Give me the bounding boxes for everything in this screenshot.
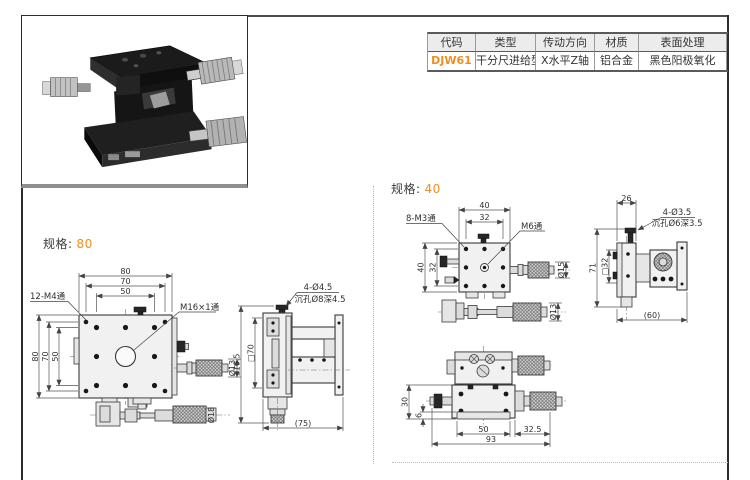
dim-width: 26 xyxy=(621,194,631,203)
dim-top-80: 80 xyxy=(120,268,130,276)
col-header-direction: 传动方向 xyxy=(536,34,595,52)
section-divider-vertical xyxy=(373,186,374,464)
spec40-bottom-view: 30 6 50 32.5 93 xyxy=(398,338,583,450)
label-holes: 4-Ø4.5 xyxy=(304,282,333,293)
label-counterbore: 沉孔Ø8深4.5 xyxy=(294,294,345,305)
dim-height: 116.5 xyxy=(233,354,242,377)
lower-carriage xyxy=(430,385,562,419)
label-mount-holes: 12-M4通 xyxy=(30,291,66,302)
cell-type: 干分尺进给型 xyxy=(476,52,536,70)
dim-left-40: 40 xyxy=(417,262,426,272)
dim-plate: 6 xyxy=(415,413,424,418)
body xyxy=(613,228,687,307)
product-photo-illustration xyxy=(22,16,247,182)
x-micrometer: Ø15 xyxy=(510,262,570,278)
dim-left-70: 70 xyxy=(41,351,50,361)
z-micrometer: Ø13 xyxy=(438,300,566,322)
section-divider-horizontal xyxy=(392,462,728,463)
z-micrometer: Ø18 xyxy=(90,402,230,426)
dim-spindle-dia: Ø15 xyxy=(556,262,566,278)
col-header-material: 材质 xyxy=(595,34,639,52)
catalog-page: 代码 类型 传动方向 材质 表面处理 DJW61 干分尺进给型 X水平Z轴 铝合… xyxy=(0,0,750,480)
dim-left-80: 80 xyxy=(31,351,40,361)
dim-top-70: 70 xyxy=(120,277,130,286)
dim-square: □32 xyxy=(601,258,610,276)
cell-direction: X水平Z轴 xyxy=(536,52,595,70)
spec80-side-view: 4-Ø4.5 沉孔Ø8深4.5 116.5 □70 (75) xyxy=(228,278,370,453)
spec80-heading-value: 80 xyxy=(77,237,93,251)
dim-offset: 32.5 xyxy=(524,425,542,434)
dim-height: 71 xyxy=(589,263,598,273)
dim-height: 30 xyxy=(401,397,410,407)
label-counterbore: 沉孔Ø6深3.5 xyxy=(651,218,702,229)
dim-top-32: 32 xyxy=(479,213,489,222)
spec-table: 代码 类型 传动方向 材质 表面处理 DJW61 干分尺进给型 X水平Z轴 铝合… xyxy=(427,32,728,72)
dim-total-width: 93 xyxy=(486,435,496,444)
spec40-side-view: 26 71 □32 (60) 4-Ø3.5 沉孔Ø6深3.5 xyxy=(583,188,731,333)
label-holes: 4-Ø3.5 xyxy=(663,207,692,218)
dim-left-32: 32 xyxy=(429,262,438,272)
col-header-type: 类型 xyxy=(476,34,536,52)
cell-material: 铝合金 xyxy=(595,52,639,70)
labels: 4-Ø4.5 沉孔Ø8深4.5 xyxy=(286,282,346,306)
cell-finish: 黑色阳极氧化 xyxy=(639,52,727,70)
cell-code: DJW61 xyxy=(428,52,476,70)
dim-depth: (60) xyxy=(644,311,660,320)
product-photo xyxy=(21,15,248,188)
dim-square: □70 xyxy=(247,344,256,362)
labels: 4-Ø3.5 沉孔Ø6深3.5 xyxy=(638,207,703,230)
dim-inner-width: 50 xyxy=(478,425,488,434)
label-center-thread: M16×1通 xyxy=(180,302,220,313)
spec80-heading: 规格:80 xyxy=(43,235,93,252)
stage-body xyxy=(84,46,211,167)
spec80-heading-label: 规格: xyxy=(43,237,73,251)
spec40-front-view: Ø15 Ø13 40 32 40 32 xyxy=(398,193,583,345)
col-header-finish: 表面处理 xyxy=(639,34,727,52)
dim-thimble-dia: Ø18 xyxy=(206,407,216,423)
plate xyxy=(74,307,189,409)
plate xyxy=(440,234,510,298)
dim-left-50: 50 xyxy=(51,351,60,361)
label-center-thread: M6通 xyxy=(521,221,543,232)
upper-carriage xyxy=(447,352,550,384)
dim-thimble-dia: Ø13 xyxy=(548,304,558,320)
label-mount-holes: 8-M3通 xyxy=(406,213,436,224)
dim-top-40: 40 xyxy=(479,201,489,210)
dim-top-50: 50 xyxy=(120,287,130,296)
dim-depth: (75) xyxy=(295,419,311,428)
col-header-code: 代码 xyxy=(428,34,476,52)
spec80-front-view: Ø13 Ø18 80 70 50 80 70 xyxy=(30,268,242,448)
micrometer-left xyxy=(43,78,91,97)
body xyxy=(263,305,350,430)
